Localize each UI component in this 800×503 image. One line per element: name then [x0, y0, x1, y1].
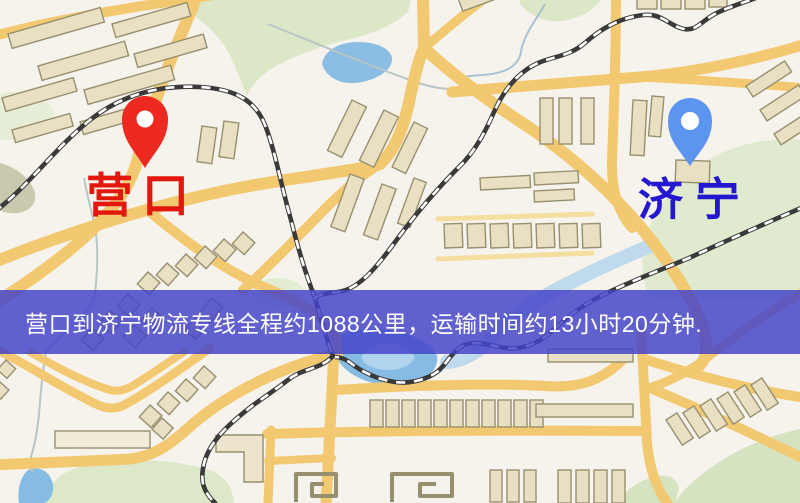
map-screenshot: 营口 济宁 营口到济宁物流专线全程约1088公里，运输时间约13小时20分钟. [0, 0, 800, 503]
map-canvas [0, 0, 800, 503]
route-info-text: 营口到济宁物流专线全程约1088公里，运输时间约13小时20分钟. [25, 305, 702, 339]
yingkou-label: 营口 [86, 172, 198, 219]
yingkou-pin-hole [137, 111, 154, 128]
route-info-banner: 营口到济宁物流专线全程约1088公里，运输时间约13小时20分钟. [0, 290, 800, 354]
jining-label: 济宁 [638, 177, 752, 222]
jining-pin-hole [681, 112, 699, 130]
